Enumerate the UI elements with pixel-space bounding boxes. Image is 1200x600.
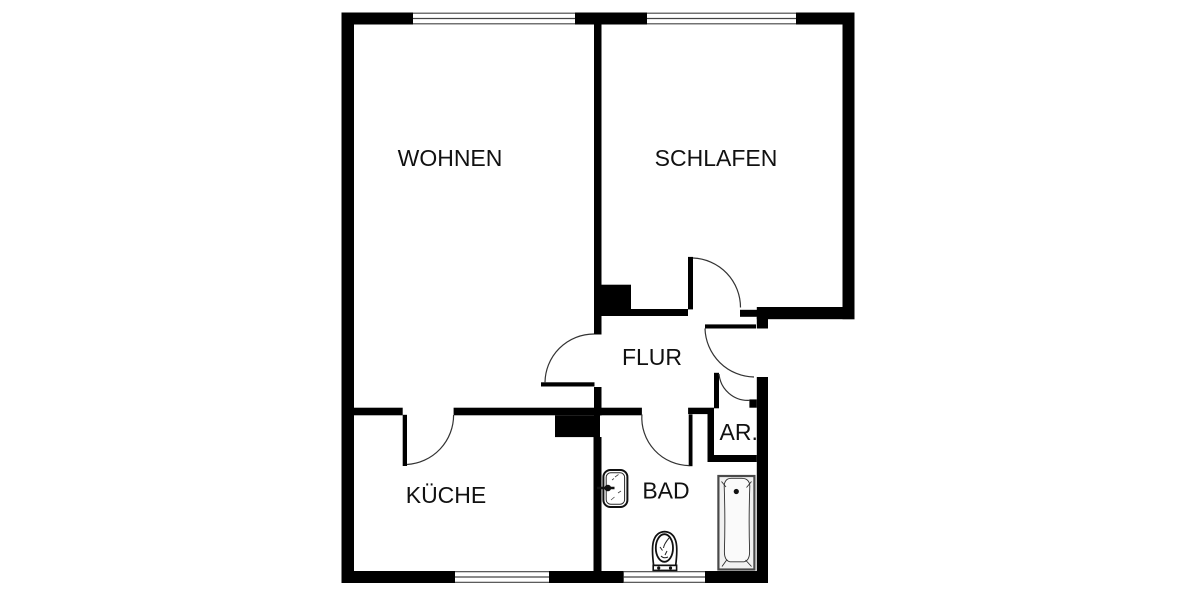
svg-text:FLUR: FLUR <box>622 344 682 370</box>
svg-text:SCHLAFEN: SCHLAFEN <box>655 145 778 171</box>
svg-text:BAD: BAD <box>642 478 689 504</box>
svg-text:KÜCHE: KÜCHE <box>406 482 487 508</box>
svg-text:WOHNEN: WOHNEN <box>398 145 503 171</box>
svg-text:AR.: AR. <box>720 419 758 445</box>
